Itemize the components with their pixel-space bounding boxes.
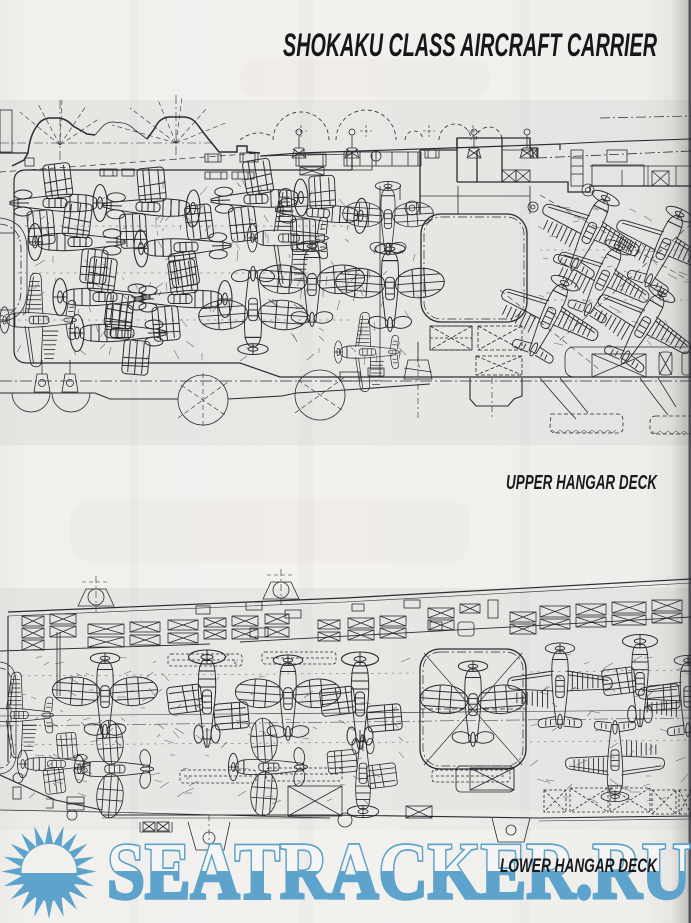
svg-text:SHOKAKU CLASS AIRCRAFT CARRIER: SHOKAKU CLASS AIRCRAFT CARRIER — [283, 27, 657, 63]
svg-text:UPPER HANGAR DECK: UPPER HANGAR DECK — [506, 472, 658, 494]
svg-text:LOWER HANGAR DECK: LOWER HANGAR DECK — [500, 856, 658, 877]
